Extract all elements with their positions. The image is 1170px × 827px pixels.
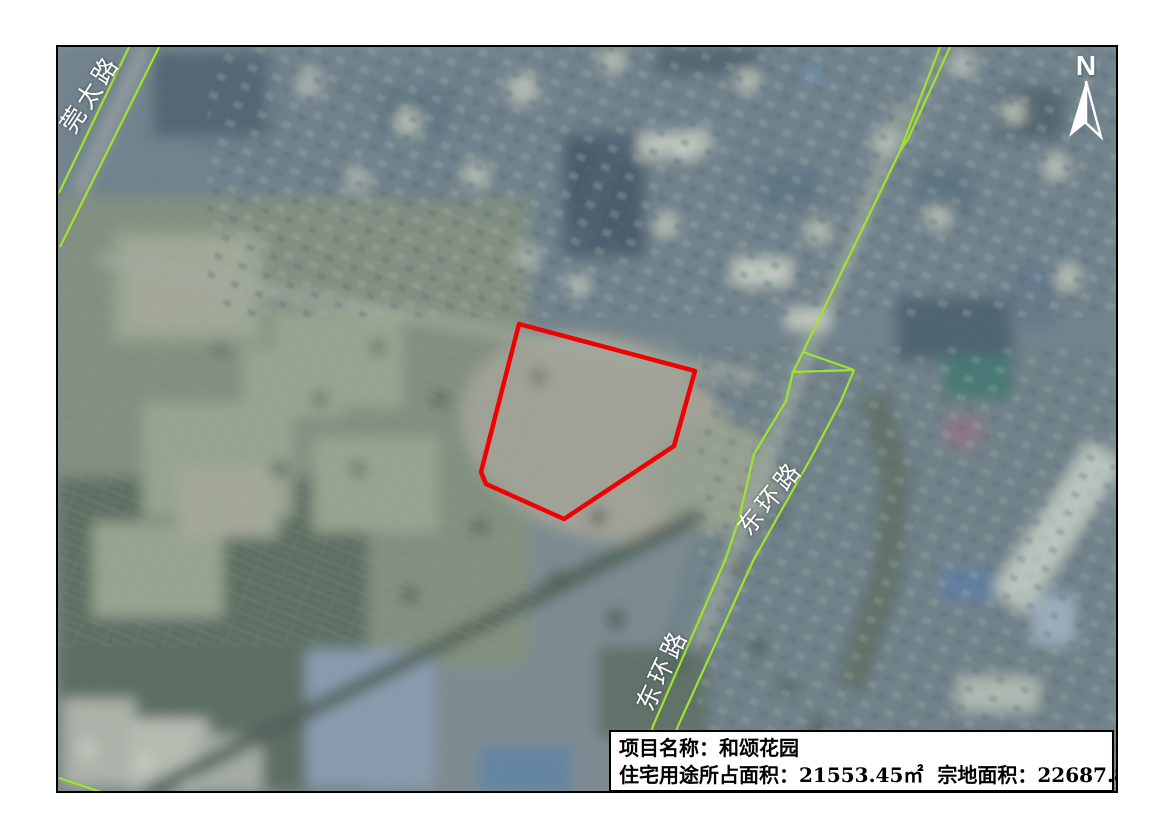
residential-area-label: 住宅用途所占面积：	[619, 763, 799, 787]
info-box: 项目名称：和颂花园 住宅用途所占面积：21553.45㎡宗地面积：22687.8…	[609, 730, 1114, 792]
area-info-line: 住宅用途所占面积：21553.45㎡宗地面积：22687.84㎡	[619, 762, 1104, 789]
parcel-area-label: 宗地面积：	[937, 763, 1037, 787]
project-name-label: 项目名称：	[619, 736, 719, 760]
satellite-imagery	[58, 47, 1116, 791]
project-name-line: 项目名称：和颂花园	[619, 735, 1104, 762]
parcel-area-value: 22687.84㎡	[1037, 763, 1118, 787]
residential-area-value: 21553.45㎡	[799, 763, 923, 787]
map-viewport: 莞太路 东环路 东环路 N 项目名称：和颂花园 住宅用途所占面积：21553.4…	[56, 45, 1118, 793]
project-name-value: 和颂花园	[719, 736, 799, 760]
north-label: N	[1076, 50, 1096, 82]
